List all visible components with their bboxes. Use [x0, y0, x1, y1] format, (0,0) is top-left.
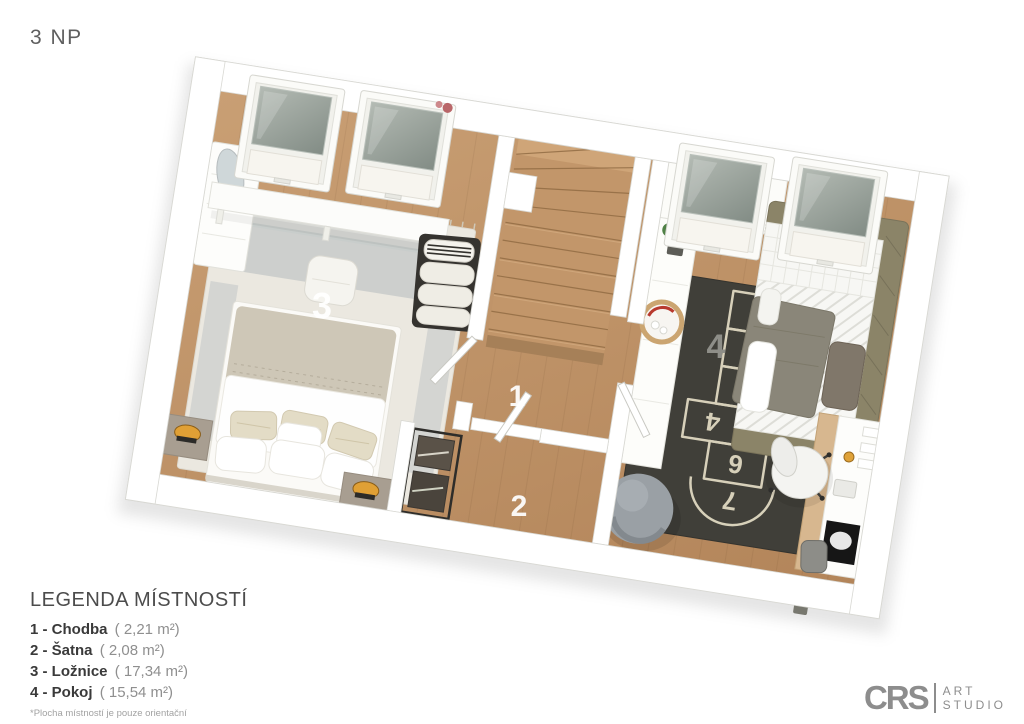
legend-row: 2 - Šatna ( 2,08 m²) — [30, 642, 247, 659]
legend-title: LEGENDA MÍSTNOSTÍ — [30, 589, 247, 612]
skylight-window — [777, 157, 888, 275]
legend: LEGENDA MÍSTNOSTÍ 1 - Chodba ( 2,21 m²) … — [30, 589, 247, 719]
logo-studio-text: ART STUDIO — [943, 684, 1006, 712]
legend-room-area: ( 17,34 m²) — [115, 663, 188, 680]
page: 3 NP — [0, 0, 1024, 724]
skylight-window — [664, 143, 775, 261]
legend-room-label: 2 - Šatna — [30, 642, 93, 659]
backpack — [801, 540, 828, 572]
room-label-wardrobe: 2 — [511, 490, 528, 523]
room-label-bedroom: 3 — [312, 285, 332, 326]
nightstand-left — [161, 414, 213, 461]
legend-row: 3 - Ložnice ( 17,34 m²) — [30, 663, 247, 680]
logo-divider — [934, 683, 936, 713]
logo-line-art: ART — [943, 684, 1006, 698]
keyboard — [833, 479, 857, 498]
logo-line-studio: STUDIO — [943, 698, 1006, 712]
legend-room-area: ( 2,21 m²) — [115, 621, 180, 638]
legend-row: 4 - Pokoj ( 15,54 m²) — [30, 684, 247, 701]
legend-row: 1 - Chodba ( 2,21 m²) — [30, 621, 247, 638]
legend-footnote: *Plocha místností je pouze orientační — [30, 708, 247, 719]
legend-room-area: ( 2,08 m²) — [100, 642, 165, 659]
logo-brand: CRS — [864, 681, 928, 714]
legend-room-label: 3 - Ložnice — [30, 663, 108, 680]
skylight-window — [234, 75, 345, 193]
legend-room-label: 4 - Pokoj — [30, 684, 93, 701]
studio-logo: CRS ART STUDIO — [864, 681, 1006, 714]
plan-rotated: 1 2 3 4 5 6 7 — [117, 56, 958, 635]
skylight-window — [345, 89, 456, 208]
room-label-hallway: 1 — [509, 380, 526, 413]
legend-room-label: 1 - Chodba — [30, 621, 108, 638]
room-label-kids-room: 4 — [707, 328, 726, 366]
legend-room-area: ( 15,54 m²) — [100, 684, 173, 701]
